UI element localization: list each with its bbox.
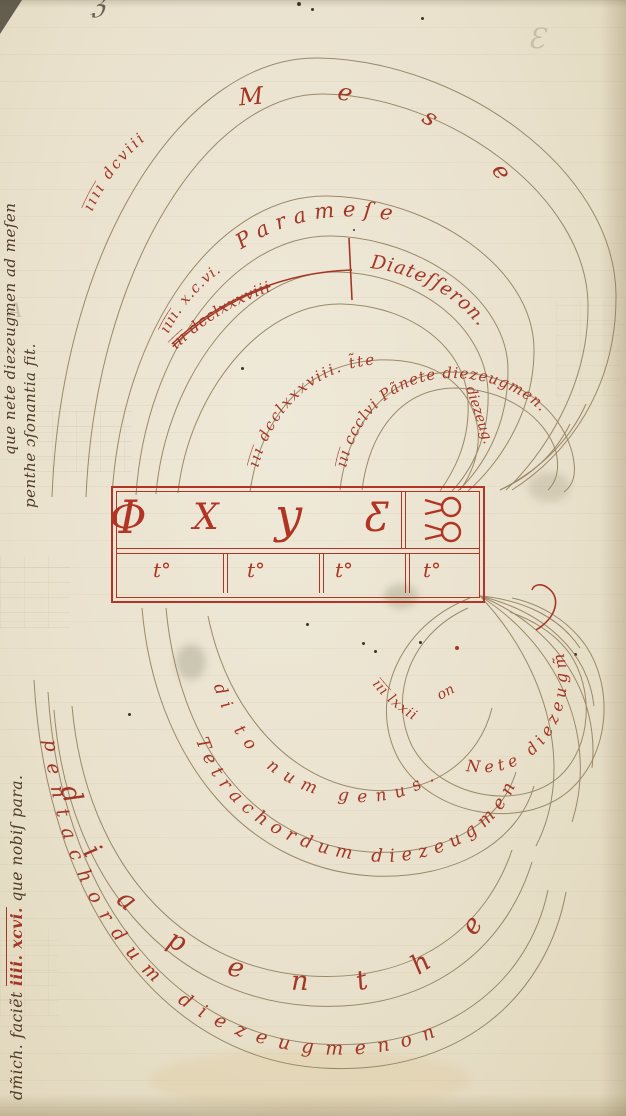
nete-label: Nete diezeugm̃ [465, 647, 571, 777]
fan-line [480, 596, 594, 706]
table-column-divider [223, 554, 228, 593]
interval-cell-tonus: t° [153, 558, 171, 582]
margin-note-upper-line1: que nete diezeugmen ad meſen [1, 203, 19, 455]
genus-text: di to num genus. [209, 681, 445, 807]
nete-number-text: i̅i̅i̅ lxxii [369, 676, 421, 724]
note-symbol-phi: Φ [109, 494, 147, 540]
diapente-arc-outer [54, 710, 532, 1006]
paranete-arc-outer [340, 372, 574, 492]
genus-label: di to num genus. [209, 681, 445, 807]
fork-stroke [425, 525, 442, 530]
page-edge-shadow-right [600, 0, 626, 1116]
monochord-table: Φ X y Ƹ t° t° t° t° [111, 486, 485, 603]
page-edge-shadow-top [0, 0, 626, 8]
margin-note-lower-suffix: que nobiſ para. [8, 775, 26, 902]
table-column-divider [405, 554, 410, 593]
mese-number-text: i̅i̅i̅i̅ dcviii [79, 128, 150, 215]
table-column-divider [401, 492, 406, 548]
paranete-text: i̅i̅i̅ ccclvi Pãnete diezeugmen. [332, 364, 551, 470]
separator-tick [349, 238, 352, 300]
double-circle-glyph [415, 494, 469, 546]
diapente-label: diapenthe [53, 781, 518, 998]
note-symbol-y: y [275, 492, 302, 540]
mese-arc-outer [52, 58, 616, 497]
nete-label-text: Nete diezeugm̃ [465, 647, 571, 777]
paramese-arc-label: Parameſe [230, 197, 402, 254]
margin-note-lower: dm̃ich. faciẽt iiii. xcvi. que nobiſ par… [7, 775, 26, 1100]
table-column-divider [319, 554, 324, 593]
circle-glyph-top [442, 498, 460, 516]
interval-cell-tonus: t° [247, 558, 265, 582]
circle-glyph-bottom [442, 523, 460, 541]
genus-arc [208, 616, 492, 791]
fork-stroke [425, 535, 442, 539]
fork-stroke [425, 500, 442, 505]
margin-note-lower-prefix: dm̃ich. faciẽt [8, 991, 26, 1100]
mese-arc-inner [86, 94, 588, 497]
paramese-label-text: Parameſe [230, 197, 402, 254]
paranete-label: i̅i̅i̅ ccclvi Pãnete diezeugmen. [332, 364, 551, 470]
fork-stroke [425, 510, 442, 514]
margin-note-lower-number: iiii. xcvi. [7, 907, 26, 986]
monochord-table-inner-border: Φ X y Ƹ t° t° t° t° [116, 491, 480, 598]
interval-cell-tonus: t° [423, 558, 441, 582]
table-row-divider [117, 548, 479, 554]
interval-cell-tonus: t° [335, 558, 353, 582]
nete-number-label: i̅i̅i̅ lxxii [369, 676, 421, 724]
fan-line [480, 596, 580, 648]
diapente-text: diapenthe [53, 781, 518, 998]
note-symbol-x: X [193, 500, 219, 536]
tetrachord-arc-inner [166, 608, 516, 852]
mese-number-label: i̅i̅i̅i̅ dcviii [79, 128, 150, 215]
manuscript-page: Ɛ ℨ A [0, 0, 626, 1116]
fragment-on-label: on [434, 681, 457, 703]
note-symbol-ezh: Ƹ [365, 498, 388, 538]
page-edge-shadow-bottom [0, 1094, 626, 1116]
margin-note-upper-line2: penthe ɔſonantia fit. [21, 343, 39, 508]
